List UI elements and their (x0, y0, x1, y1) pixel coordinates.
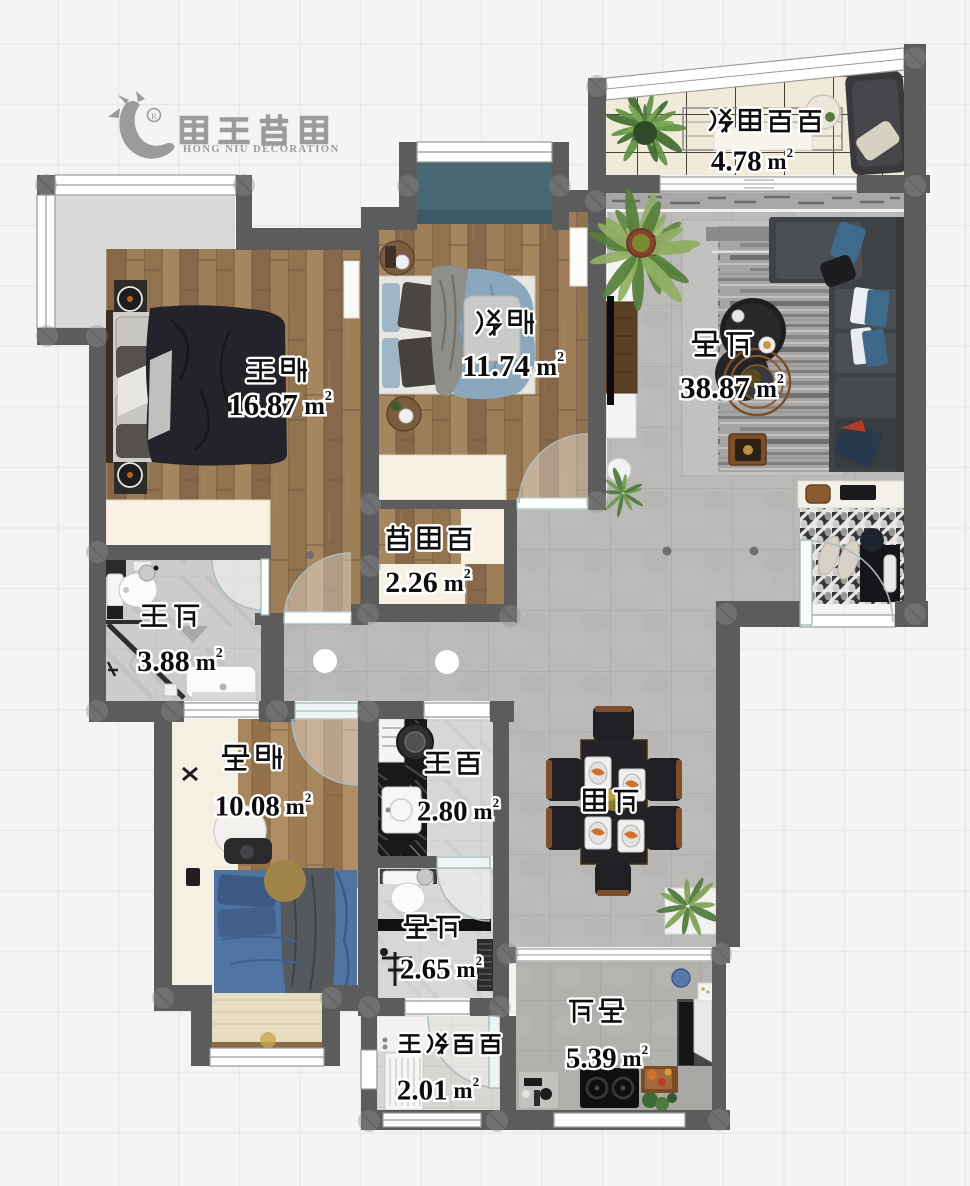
svg-text:2.26 m2: 2.26 m2 (385, 566, 471, 599)
svg-text:10.08 m2: 10.08 m2 (215, 790, 312, 823)
svg-text:HONG NIU DECORATION: HONG NIU DECORATION (183, 144, 340, 155)
svg-text:5.39 m2: 5.39 m2 (566, 1042, 648, 1075)
svg-text:3.88 m2: 3.88 m2 (137, 645, 223, 678)
svg-text:16.87 m2: 16.87 m2 (228, 387, 332, 422)
svg-text:2.65 m2: 2.65 m2 (400, 953, 482, 986)
svg-text:R: R (151, 111, 157, 121)
svg-text:38.87 m2: 38.87 m2 (680, 370, 784, 405)
svg-text:11.74 m2: 11.74 m2 (462, 348, 564, 383)
svg-text:4.78 m2: 4.78 m2 (711, 145, 793, 178)
svg-text:2.80 m2: 2.80 m2 (417, 795, 499, 828)
svg-text:2.01 m2: 2.01 m2 (397, 1074, 479, 1107)
